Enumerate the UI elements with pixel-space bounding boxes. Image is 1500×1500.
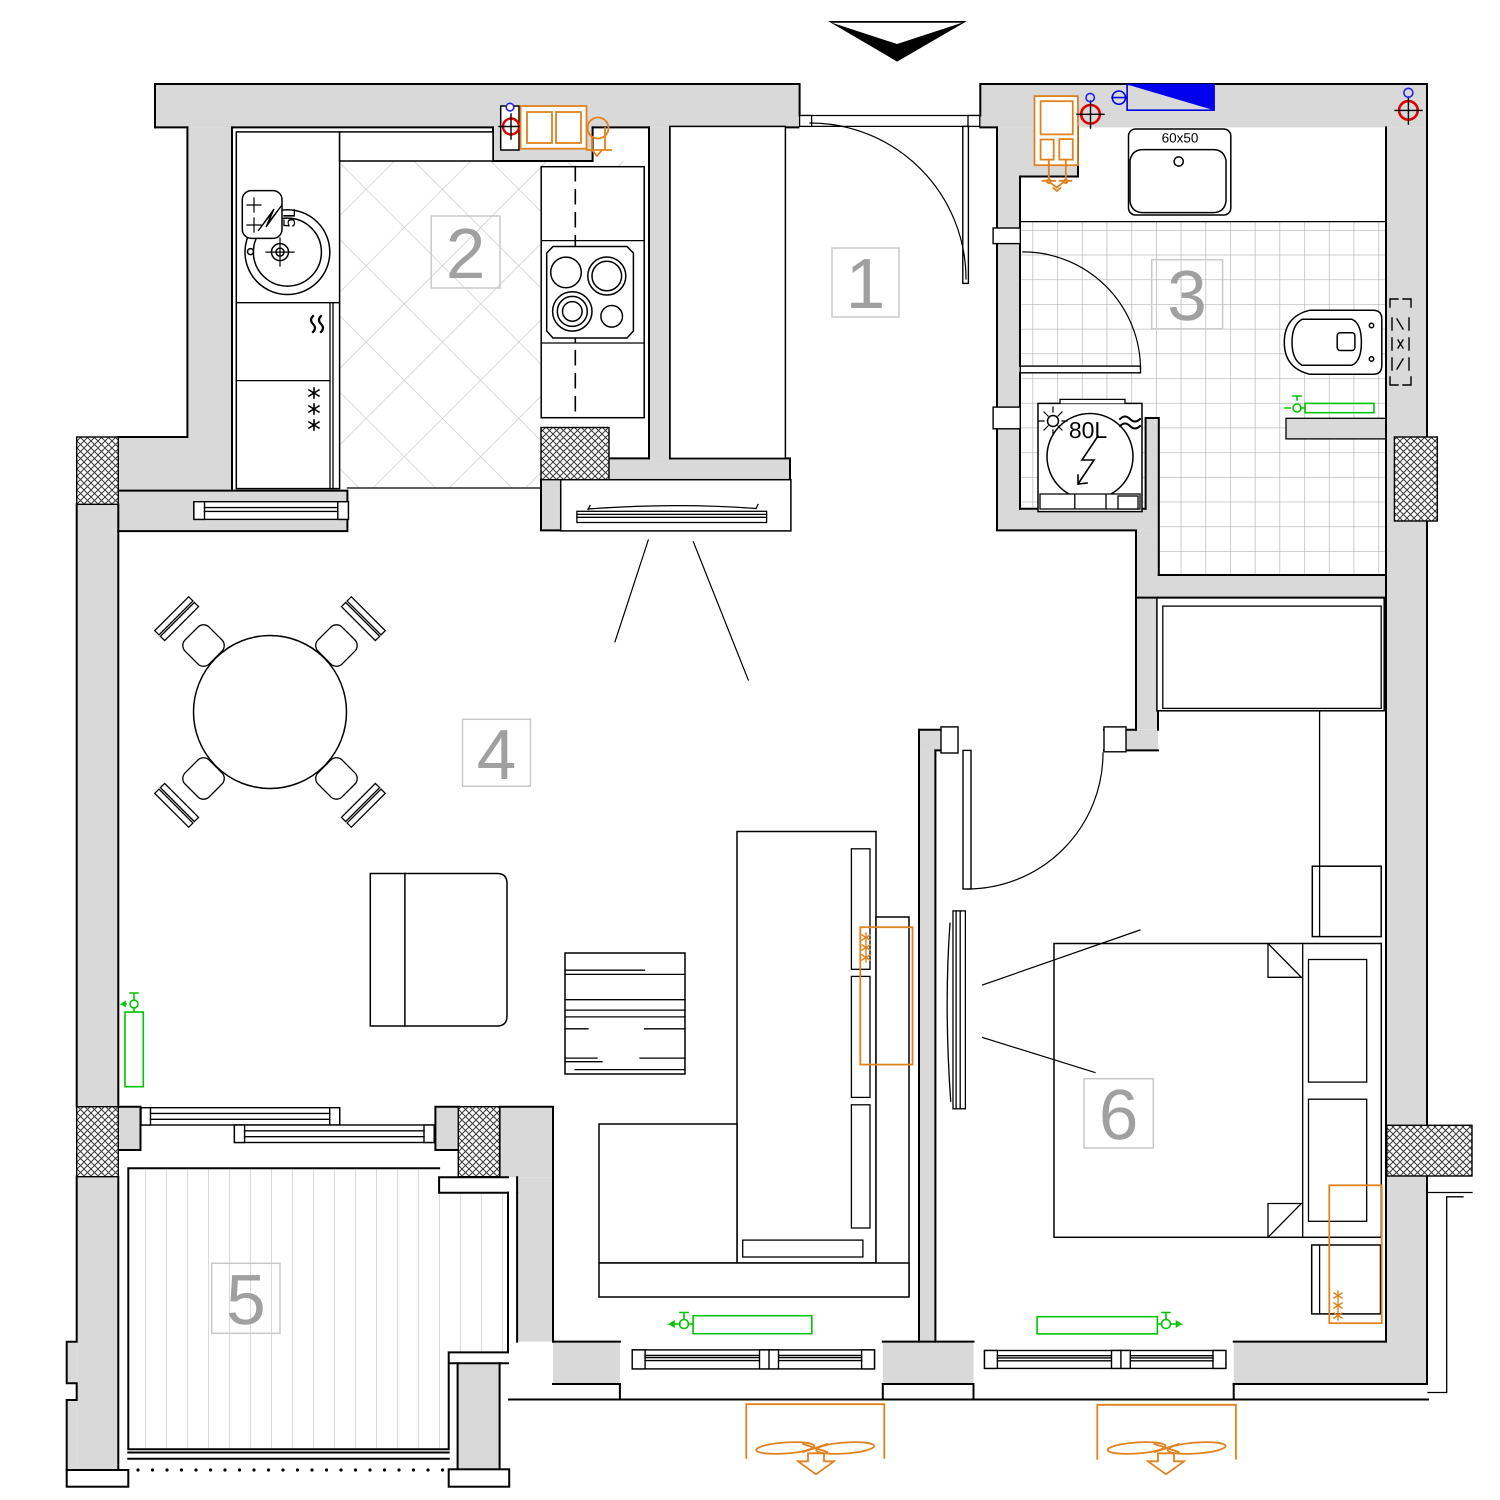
svg-text:1: 1: [846, 245, 886, 324]
svg-text:3: 3: [1167, 257, 1207, 336]
svg-text:60x50: 60x50: [1162, 131, 1199, 146]
svg-text:6: 6: [1099, 1076, 1139, 1155]
svg-text:5L: 5L: [280, 209, 299, 228]
svg-text:5: 5: [226, 1261, 266, 1340]
svg-text:2: 2: [446, 215, 486, 294]
svg-text:80L: 80L: [1069, 417, 1108, 443]
svg-text:4: 4: [477, 716, 517, 795]
